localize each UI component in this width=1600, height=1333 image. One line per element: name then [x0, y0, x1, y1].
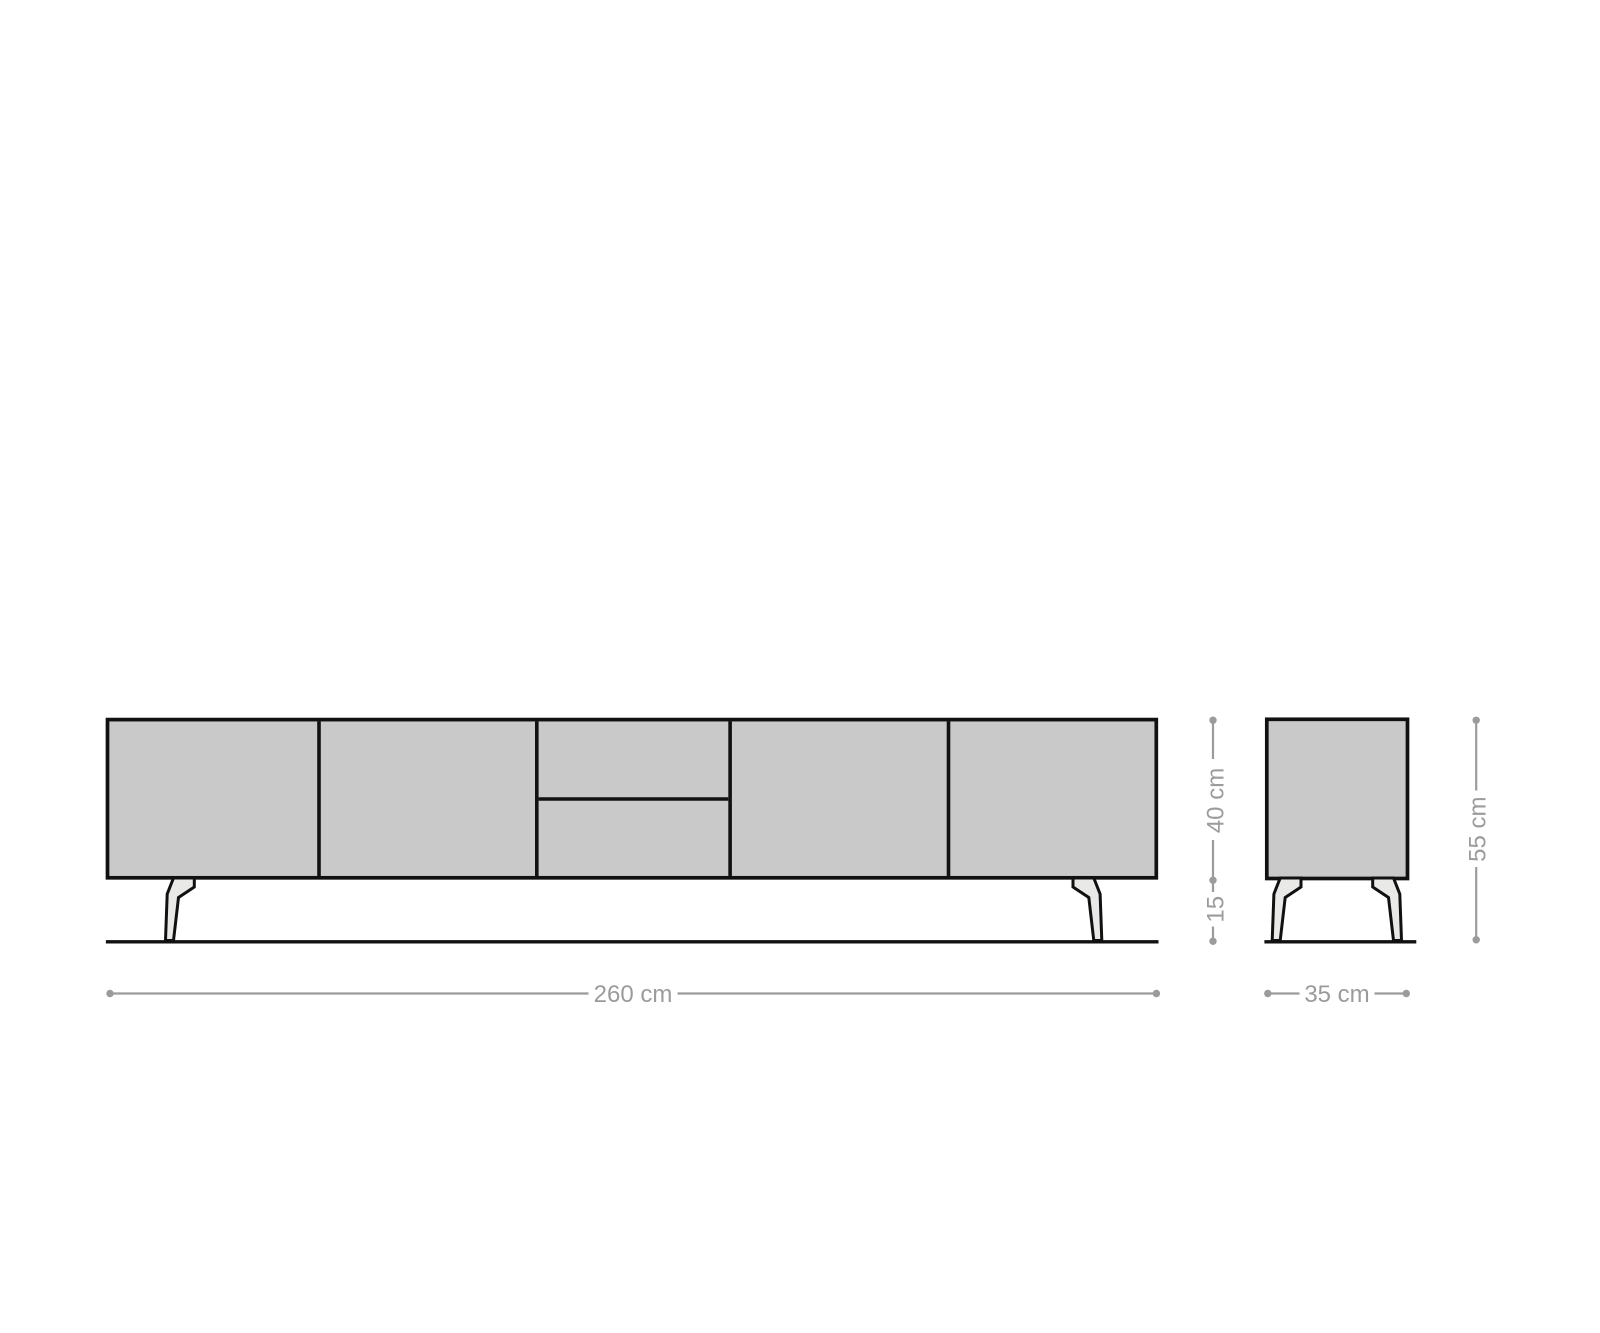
svg-text:40 cm: 40 cm — [1203, 768, 1230, 833]
svg-text:260 cm: 260 cm — [594, 981, 673, 1008]
svg-text:15: 15 — [1203, 896, 1230, 923]
svg-text:55 cm: 55 cm — [1465, 797, 1492, 862]
svg-text:35 cm: 35 cm — [1304, 981, 1369, 1008]
